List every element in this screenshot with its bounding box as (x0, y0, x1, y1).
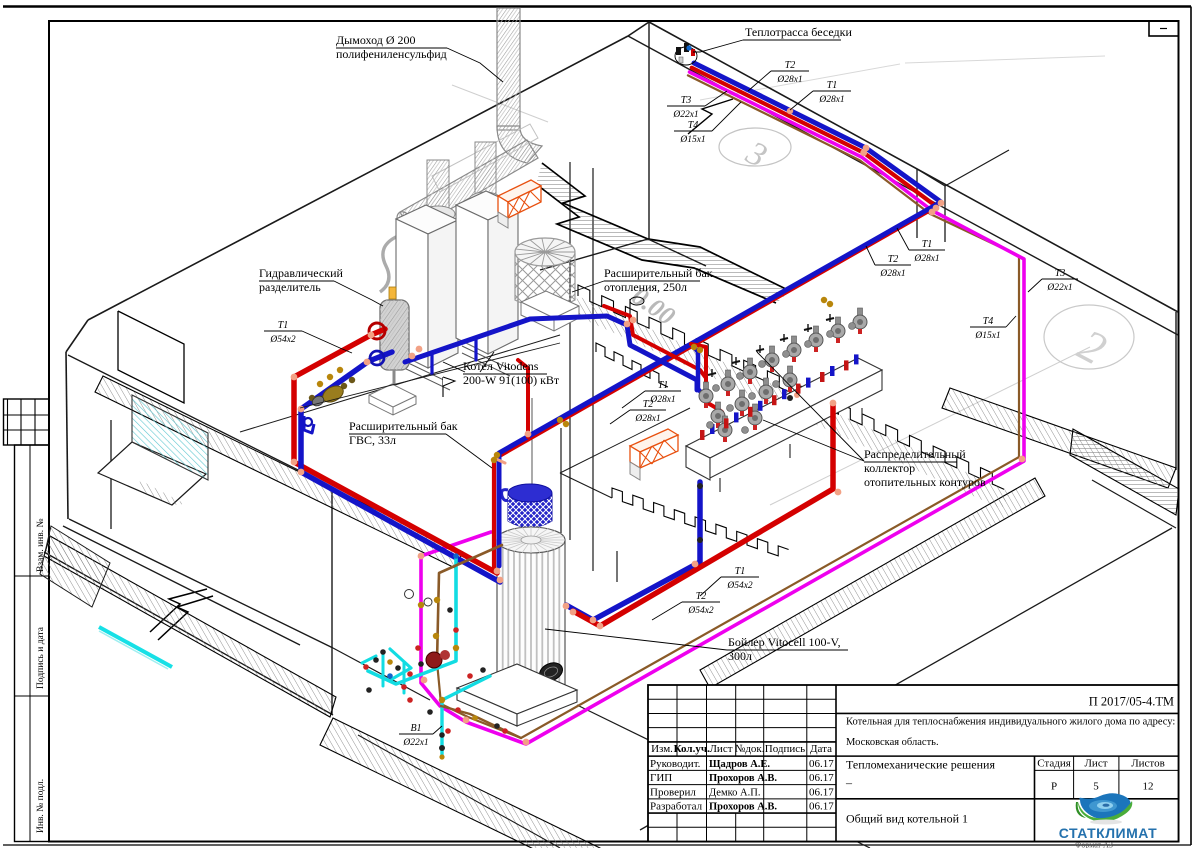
svg-text:Т2: Т2 (888, 254, 899, 265)
svg-text:06.17: 06.17 (809, 758, 834, 770)
svg-text:отопительных контуров: отопительных контуров (864, 475, 986, 489)
svg-text:Расширительный бак: Расширительный бак (349, 419, 458, 433)
svg-text:Ø54х2: Ø54х2 (269, 335, 296, 345)
svg-text:Ø22х1: Ø22х1 (672, 110, 698, 120)
svg-text:Щадров А.Е.: Щадров А.Е. (709, 759, 770, 770)
svg-text:300л: 300л (728, 649, 752, 663)
svg-text:Ø15х1: Ø15х1 (974, 331, 1000, 341)
svg-text:Прохоров А.В.: Прохоров А.В. (709, 773, 777, 784)
svg-text:полифениленсульфид: полифениленсульфид (336, 47, 447, 61)
svg-text:Лист: Лист (1084, 757, 1107, 769)
svg-text:Ø28х1: Ø28х1 (913, 254, 939, 264)
svg-text:Ø28х1: Ø28х1 (649, 395, 675, 405)
svg-text:Т2: Т2 (696, 591, 707, 602)
svg-text:Т2: Т2 (643, 399, 654, 410)
svg-text:ГИП: ГИП (650, 772, 672, 784)
svg-text:Ø15х1: Ø15х1 (679, 135, 705, 145)
svg-text:Московская область.: Московская область. (846, 737, 939, 748)
svg-text:Ø28х1: Ø28х1 (879, 269, 905, 279)
svg-text:Ø22х1: Ø22х1 (1046, 283, 1072, 293)
svg-text:Проверил: Проверил (650, 786, 696, 798)
svg-text:Ø54х2: Ø54х2 (687, 606, 714, 616)
svg-text:Т2: Т2 (785, 60, 796, 71)
svg-text:Т4: Т4 (983, 316, 994, 327)
svg-text:Т1: Т1 (827, 80, 838, 91)
svg-text:Т3: Т3 (1055, 268, 1066, 279)
svg-text:5: 5 (1093, 781, 1099, 793)
svg-text:разделитель: разделитель (259, 280, 321, 294)
svg-text:Т3: Т3 (681, 95, 692, 106)
svg-text:Т1: Т1 (735, 566, 746, 577)
svg-text:П 2017/05-4.ТМ: П 2017/05-4.ТМ (1089, 694, 1174, 708)
svg-text:Стадия: Стадия (1037, 757, 1071, 769)
svg-text:Ø28х1: Ø28х1 (818, 95, 844, 105)
svg-text:Лист: Лист (709, 743, 732, 755)
svg-text:СТАТКЛИМАТ: СТАТКЛИМАТ (1059, 825, 1157, 841)
svg-text:Котельная для теплоснабжения и: Котельная для теплоснабжения индивидуаль… (846, 717, 1175, 728)
svg-text:Т4: Т4 (688, 120, 699, 131)
svg-text:Подпись: Подпись (765, 743, 805, 755)
svg-text:06.17: 06.17 (809, 801, 834, 813)
svg-text:200-W 91(100) кВт: 200-W 91(100) кВт (463, 373, 560, 387)
svg-text:В1: В1 (410, 723, 421, 734)
svg-text:Ø54х2: Ø54х2 (726, 581, 753, 591)
svg-text:Разработал: Разработал (650, 801, 703, 813)
svg-text:Распределительный: Распределительный (864, 447, 966, 461)
svg-text:Ø28х1: Ø28х1 (634, 414, 660, 424)
svg-text:Дымоход Ø 200: Дымоход Ø 200 (336, 33, 416, 47)
svg-text:коллектор: коллектор (864, 461, 915, 475)
svg-text:Теплотрасса беседки: Теплотрасса беседки (745, 25, 852, 39)
svg-text:Р: Р (1051, 781, 1057, 793)
svg-text:Расширительный бак: Расширительный бак (604, 266, 713, 280)
svg-text:Кол.уч.: Кол.уч. (674, 743, 710, 755)
svg-text:Дата: Дата (810, 743, 832, 755)
svg-text:Изм.: Изм. (651, 743, 673, 755)
svg-text:Ø22х1: Ø22х1 (402, 738, 428, 748)
svg-text:Подпись и дата: Подпись и дата (36, 626, 46, 689)
svg-text:Прохоров А.В.: Прохоров А.В. (709, 802, 777, 813)
svg-text:12: 12 (1143, 781, 1154, 793)
svg-text:Ø28х1: Ø28х1 (776, 75, 802, 85)
svg-text:Т1: Т1 (278, 320, 289, 331)
svg-text:06.17: 06.17 (809, 772, 834, 784)
svg-text:Т1: Т1 (922, 239, 933, 250)
svg-text:ГВС, 33л: ГВС, 33л (349, 433, 396, 447)
svg-text:№док.: №док. (735, 743, 765, 755)
svg-text:Листов: Листов (1131, 757, 1165, 769)
svg-text:Инв. № подл.: Инв. № подл. (36, 779, 46, 833)
svg-text:Бойлер Vitocell 100-V,: Бойлер Vitocell 100-V, (728, 635, 841, 649)
svg-text:Т1: Т1 (658, 380, 669, 391)
svg-text:Общий вид котельной 1: Общий вид котельной 1 (846, 811, 968, 825)
svg-text:06.17: 06.17 (809, 786, 834, 798)
svg-text:Гидравлический: Гидравлический (259, 266, 343, 280)
svg-text:Тепломеханические решения: Тепломеханические решения (846, 757, 995, 771)
svg-text:Котел Vitodens: Котел Vitodens (463, 359, 539, 373)
svg-text:отопления, 250л: отопления, 250л (604, 280, 687, 294)
svg-text:Формат А3: Формат А3 (1075, 841, 1113, 848)
svg-text:Руководит.: Руководит. (650, 758, 701, 770)
svg-text:Демко А.П.: Демко А.П. (709, 787, 760, 798)
svg-text:–: – (845, 776, 853, 790)
